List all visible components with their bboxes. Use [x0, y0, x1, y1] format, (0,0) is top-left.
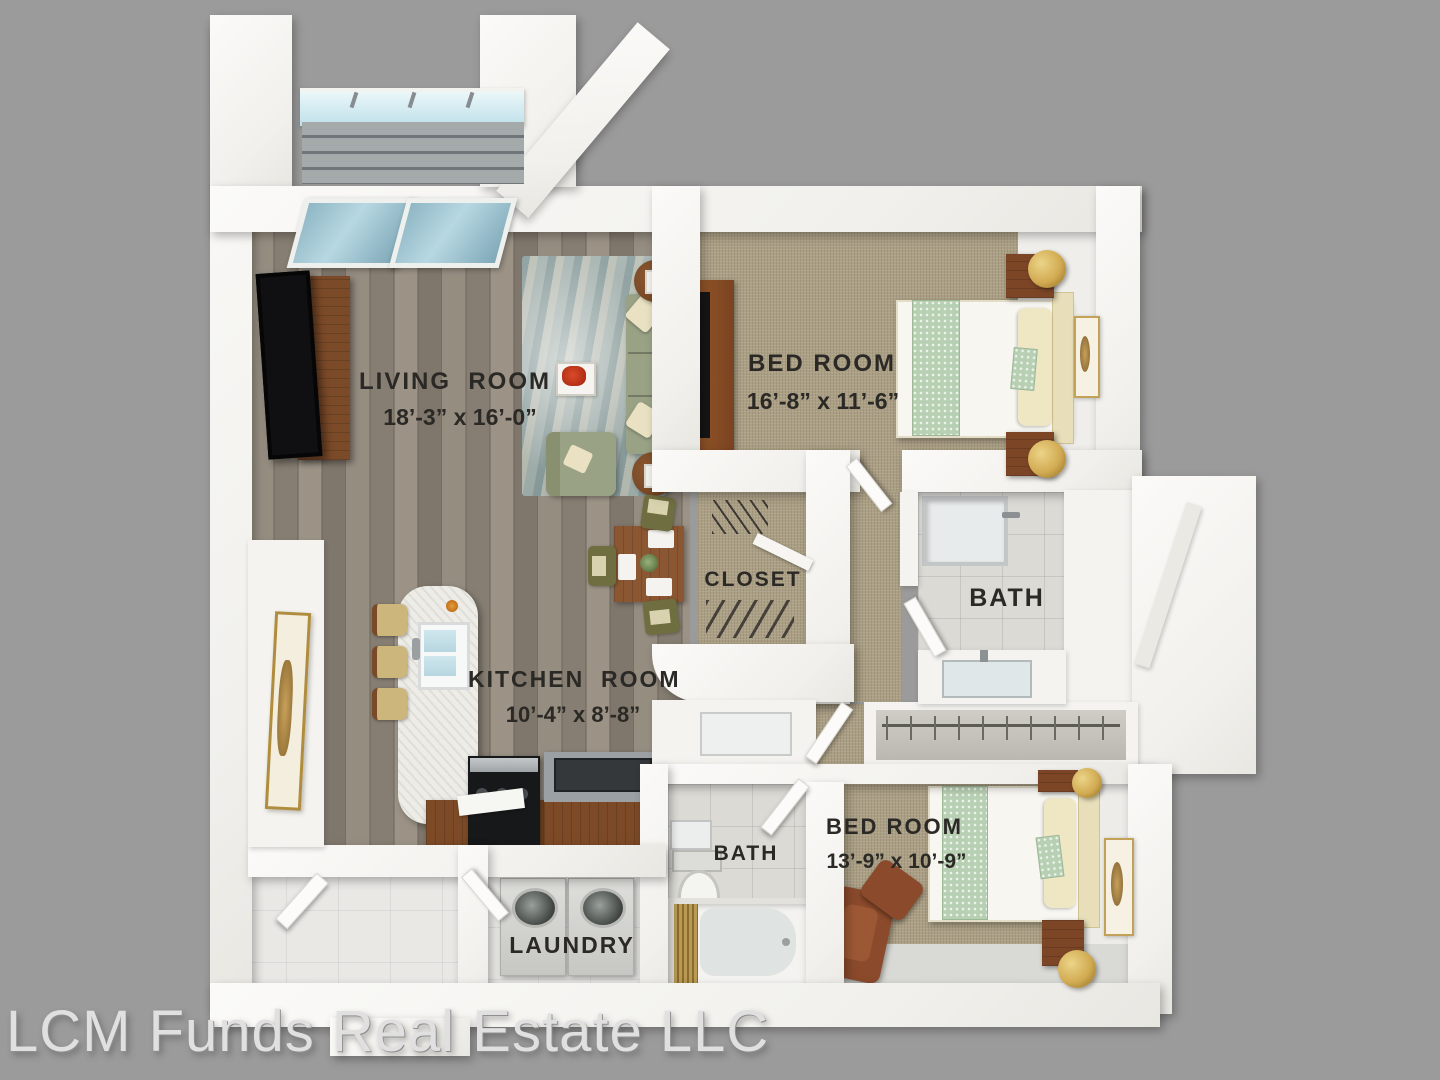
bedroom-top-art-motif [1080, 336, 1090, 372]
table-centerpiece-plant [640, 554, 658, 572]
wall-bedroom-bottom-right [1128, 764, 1172, 1014]
lamp-top-a [1028, 250, 1066, 288]
bedroom-bottom-art-motif [1111, 862, 1123, 906]
kitchen-label: KITCHEN ROOM [468, 666, 678, 693]
living-room-dimensions: 18’-3” x 16’-0” [350, 404, 570, 431]
dining-chair-bottom-seat [649, 609, 670, 625]
armchair-back [546, 432, 560, 496]
dining-chair-top-seat [647, 499, 669, 516]
stove-cooktop [470, 758, 538, 772]
placemat-left [618, 554, 636, 580]
bathtub-drain [782, 938, 790, 946]
bath-bottom-label: BATH [704, 842, 788, 866]
floor-plan: LIVING ROOM 18’-3” x 16’-0” BED ROOM 16’… [0, 0, 1440, 1080]
bedroom-top-dimensions: 16’-8” x 11’-6” [728, 388, 918, 415]
wall-hall-bath-divider [900, 492, 918, 586]
closet-hangers-top [712, 500, 768, 534]
living-room-label: LIVING ROOM [340, 368, 570, 396]
island-sink-basin2 [424, 656, 456, 676]
kitchen-dimensions: 10’-4” x 8’-8” [488, 702, 658, 728]
island-fruit-decor [446, 600, 458, 612]
wall-kitchen-bottom [248, 845, 666, 877]
washer-right-lid [580, 888, 626, 928]
wardrobe-hangers [886, 716, 1116, 740]
bar-stool-2 [372, 646, 407, 678]
balcony-deck [302, 122, 524, 184]
bedroom-top-label: BED ROOM [732, 350, 912, 378]
bed-top-lumbar-pillow [1010, 347, 1038, 391]
bar-stool-3 [372, 688, 407, 720]
shower-top [922, 496, 1008, 566]
sliding-glass-door-panel-2 [389, 198, 518, 268]
hall-counter-basin [700, 712, 792, 756]
bed-top-headboard [1052, 292, 1074, 444]
bath-top-label: BATH [960, 584, 1054, 613]
lamp-bottom-b [1058, 950, 1096, 988]
bedroom-bottom-label: BED ROOM [822, 814, 967, 840]
counter-sink-inset [554, 758, 652, 792]
hallway-carpet [850, 492, 902, 702]
watermark: LCM Funds Real Estate LLC [6, 998, 769, 1065]
lamp-bottom-top [1072, 768, 1102, 798]
bath-top-vanity-basin [942, 660, 1032, 698]
placemat-bottom [646, 578, 672, 596]
bath-mat-wood [674, 904, 698, 984]
wall-bath-inner-right [1064, 490, 1134, 714]
wall-bath-bottom-left [640, 764, 668, 1014]
island-faucet [412, 638, 420, 660]
wall-bedroom-top-right [1096, 186, 1140, 492]
bedroom-top-tv [700, 292, 710, 438]
bedroom-bottom-dimensions: 13’-9” x 10’-9” [814, 850, 979, 874]
wall-closet-bottom-curved [652, 644, 854, 702]
closet-label: CLOSET [698, 568, 808, 592]
placemat-top [648, 530, 674, 548]
closet-shoes-bottom [706, 600, 794, 638]
dining-chair-left-seat [592, 556, 606, 576]
bar-stool-1 [372, 604, 407, 636]
wall-living-bedroom-divider [652, 186, 700, 454]
bed-bottom-lumbar-pillow [1036, 835, 1065, 880]
washer-left-lid [512, 888, 558, 928]
entry-tile-floor [234, 858, 462, 990]
shower-head-icon [1002, 512, 1020, 518]
bath-top-faucet [980, 650, 988, 662]
laundry-label: LAUNDRY [502, 932, 642, 959]
bed-top-runner [912, 300, 960, 436]
wall-balcony-left [210, 15, 292, 187]
lamp-top-b [1028, 440, 1066, 478]
island-sink-basin [424, 630, 456, 652]
bed-bottom-headboard [1078, 780, 1100, 928]
